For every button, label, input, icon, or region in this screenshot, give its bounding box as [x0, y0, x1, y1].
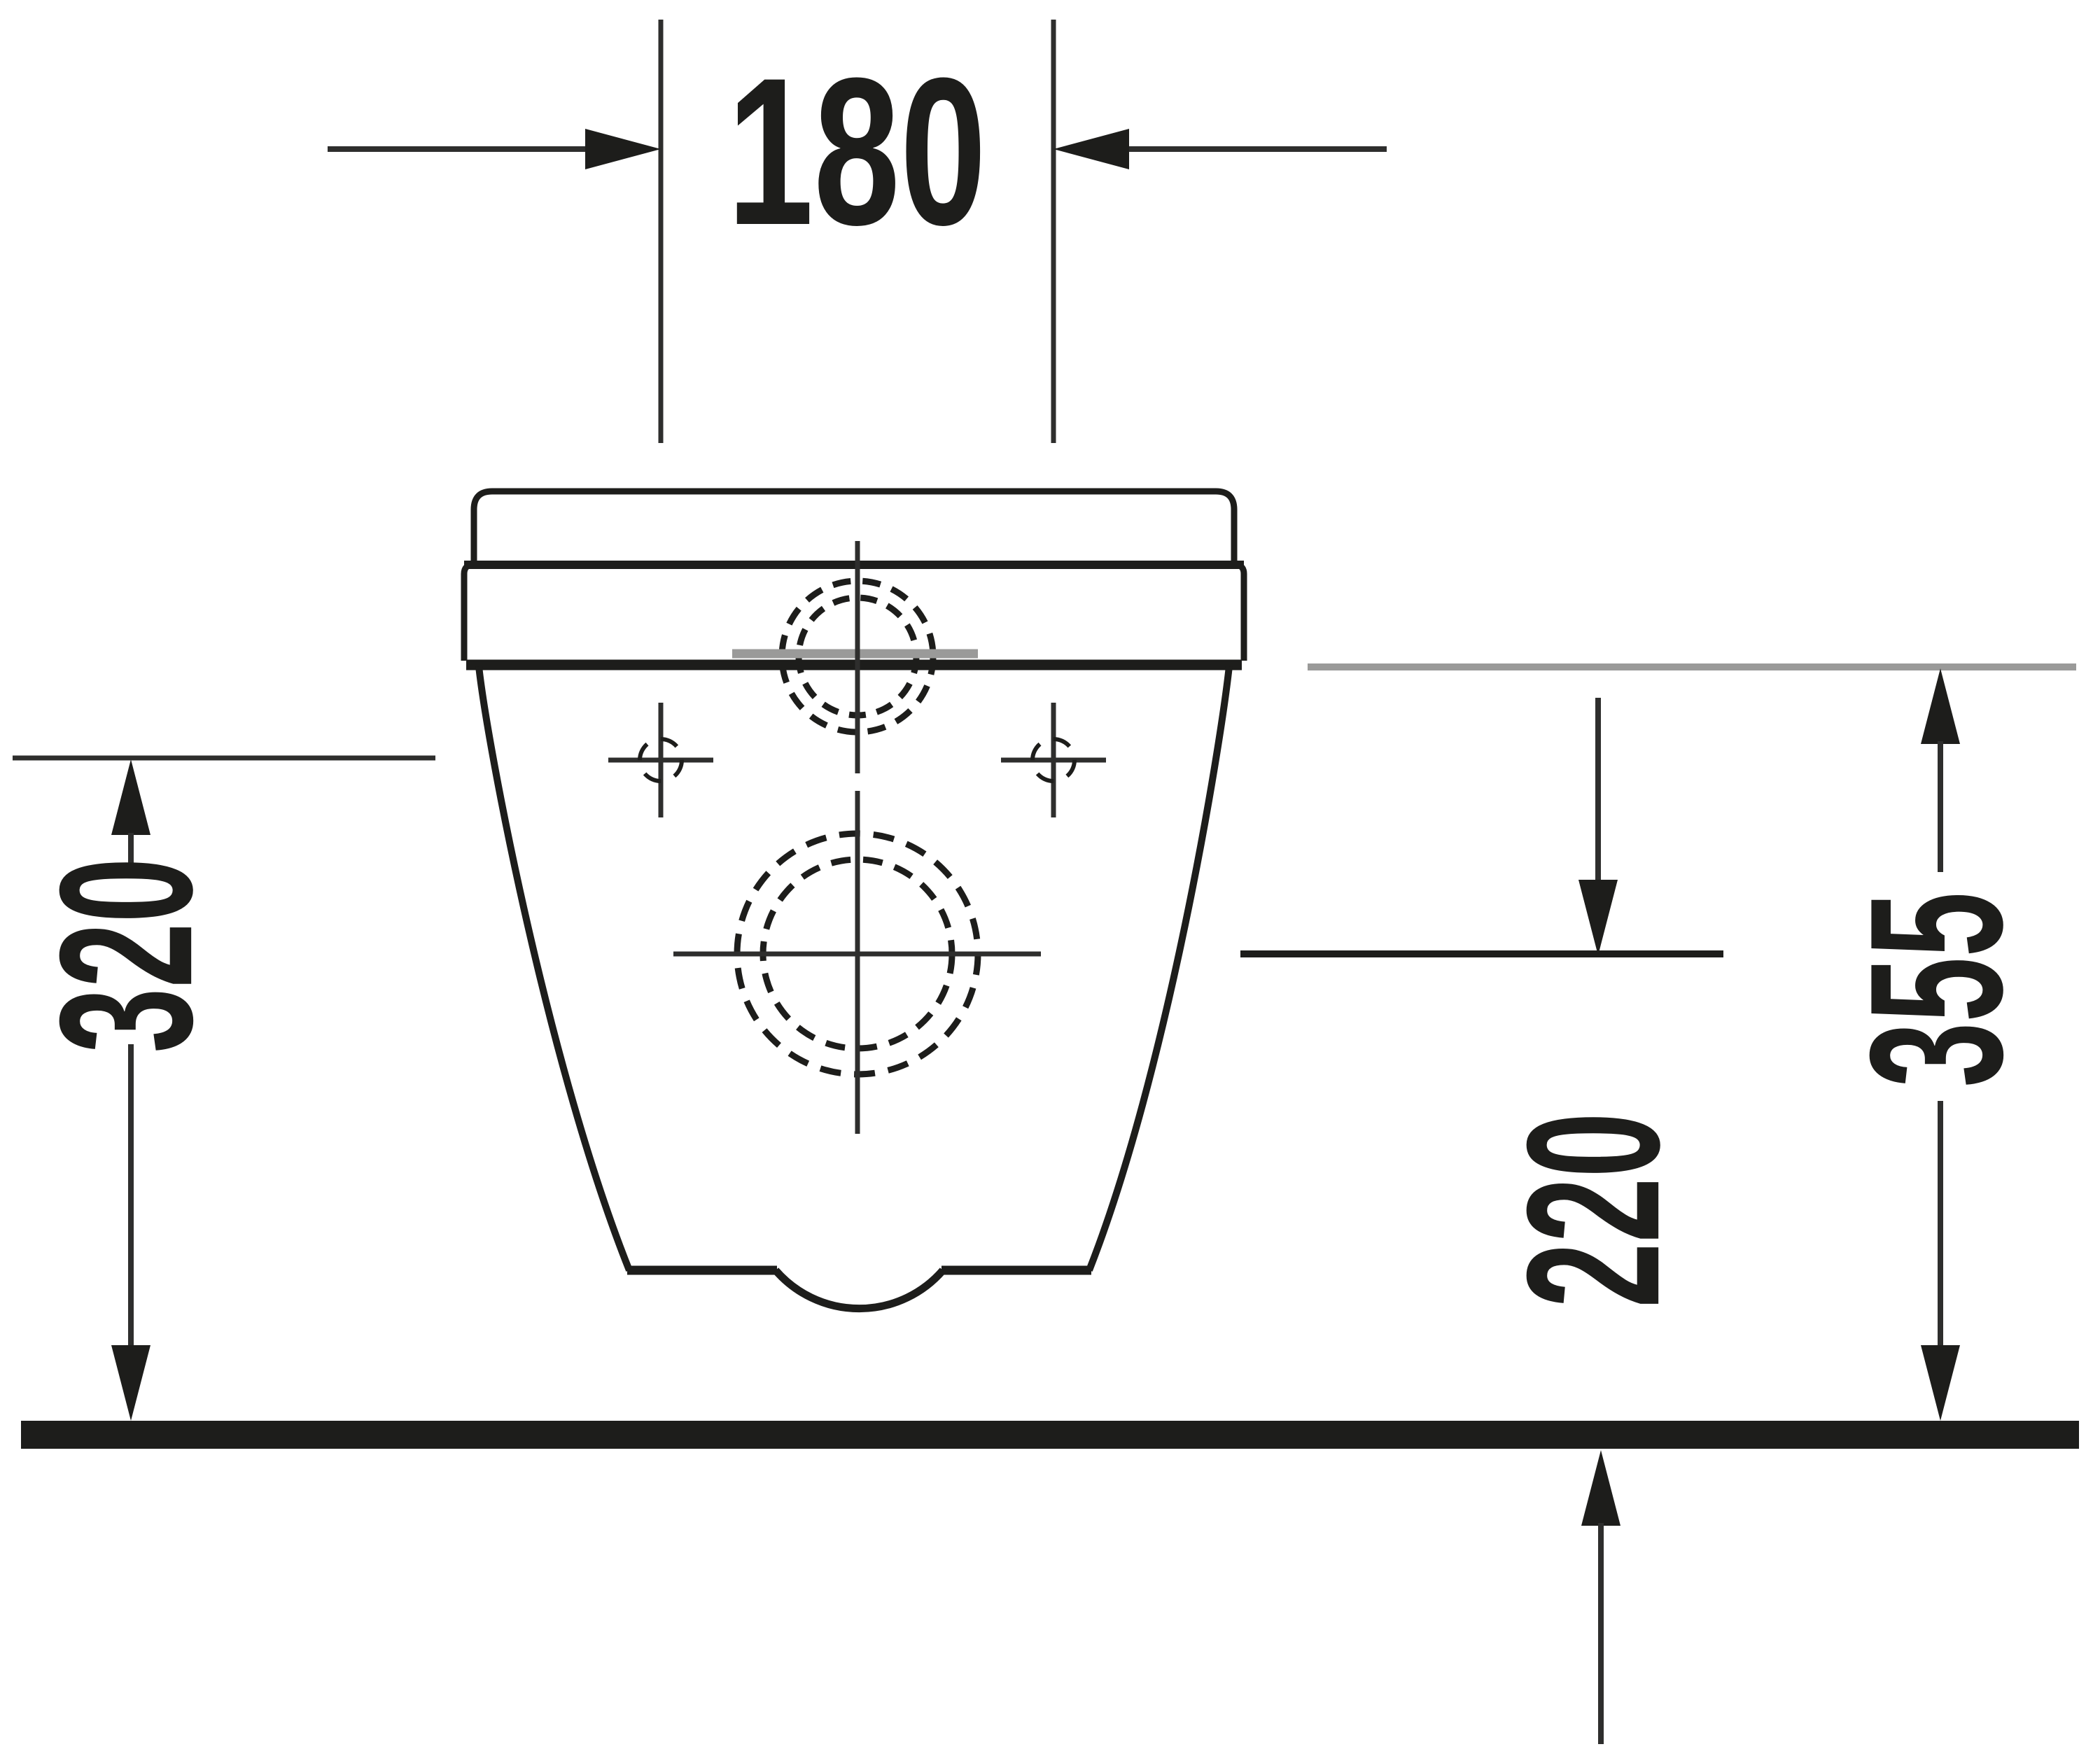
- arrow-left-icon: [1053, 129, 1129, 169]
- technical-drawing-canvas: 180: [0, 0, 2100, 1749]
- fixing-hole-left: [608, 703, 713, 817]
- toilet-lid-outline: [474, 491, 1234, 565]
- arrow-right-icon: [585, 129, 661, 169]
- dimension-220: 220: [1487, 698, 1699, 1744]
- dimension-180: 180: [328, 20, 1387, 443]
- dim-label-180: 180: [727, 34, 986, 268]
- dim-label-320: 320: [20, 857, 232, 1053]
- bowl-right-edge: [1089, 666, 1229, 1270]
- toilet-body: [464, 491, 1244, 1309]
- bowl-bottom-arc: [776, 1270, 943, 1309]
- arrow-up-icon: [111, 759, 150, 835]
- dim-label-355: 355: [1830, 892, 2042, 1087]
- hidden-connections: [588, 541, 1120, 1134]
- floor-line: [21, 1421, 2079, 1449]
- arrow-up-icon: [1921, 668, 1960, 744]
- arrow-down-icon: [111, 1345, 150, 1421]
- bowl-left-edge: [479, 666, 629, 1270]
- arrow-down-icon: [1921, 1345, 1960, 1421]
- toilet-dimension-drawing: 180: [0, 0, 2100, 1749]
- dim-label-220: 220: [1487, 1112, 1699, 1307]
- fixing-hole-right: [1001, 703, 1106, 817]
- dimension-320: 320: [13, 758, 435, 1421]
- dimension-355: 355: [1830, 668, 2042, 1421]
- arrow-up-icon: [1581, 1450, 1620, 1526]
- arrow-down-icon: [1578, 880, 1618, 955]
- toilet-flange-outline: [464, 565, 1244, 661]
